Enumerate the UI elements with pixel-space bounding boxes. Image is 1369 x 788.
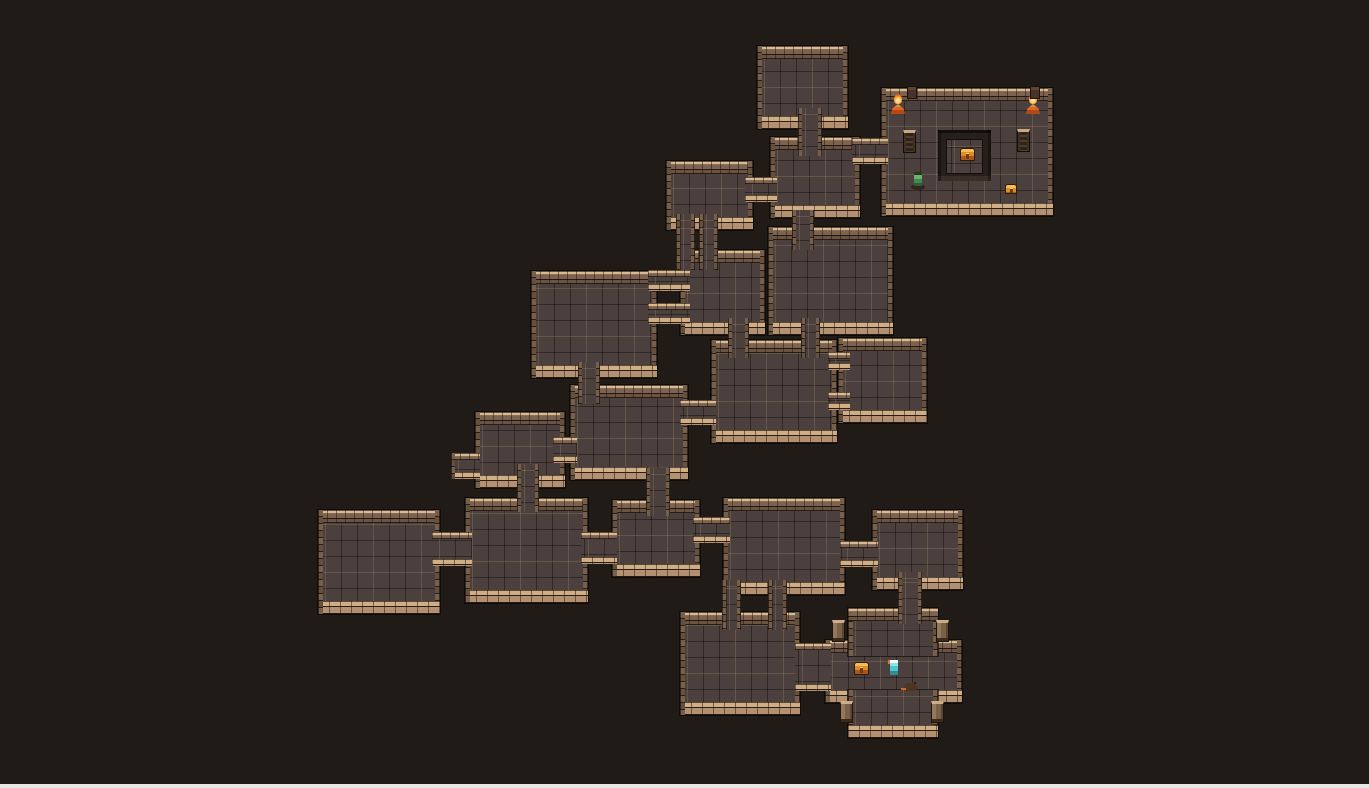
wall-right bbox=[783, 580, 787, 630]
corridor-southd-vault[interactable] bbox=[898, 572, 922, 624]
wall-bottom bbox=[881, 203, 1053, 216]
wall-top bbox=[848, 608, 938, 621]
wall-left bbox=[801, 318, 805, 358]
wall-left bbox=[728, 318, 732, 358]
corridor-top-down[interactable] bbox=[798, 108, 822, 156]
wall-top bbox=[432, 532, 472, 539]
gate-ladder-icon[interactable] bbox=[903, 130, 916, 153]
wall-top bbox=[318, 510, 440, 523]
wall-left bbox=[768, 227, 773, 335]
wall-top bbox=[648, 303, 690, 310]
wall-bottom bbox=[680, 418, 716, 425]
wall-left bbox=[646, 468, 650, 516]
wall-left bbox=[757, 46, 762, 129]
corridor-midb-westa-1[interactable] bbox=[676, 214, 695, 270]
wall-right bbox=[666, 468, 670, 516]
goblin-sprite[interactable] bbox=[911, 172, 925, 190]
wall-bottom bbox=[745, 195, 777, 202]
gate-ladder-icon[interactable] bbox=[1017, 129, 1030, 152]
wall-left bbox=[768, 580, 772, 630]
treasure-chest-sprite[interactable] bbox=[960, 148, 975, 161]
wall-left bbox=[318, 510, 323, 614]
wall-top bbox=[581, 532, 617, 539]
corridor-southc-southe-1[interactable] bbox=[722, 580, 741, 630]
wall-left bbox=[517, 464, 521, 512]
room-central-hall[interactable] bbox=[768, 227, 893, 335]
corridor-hall-centrala[interactable] bbox=[801, 318, 820, 358]
wall-right bbox=[918, 572, 922, 624]
wall-top bbox=[838, 338, 927, 351]
wall-right bbox=[596, 362, 600, 404]
corridor-bigwest-westa-1[interactable] bbox=[648, 270, 690, 291]
wall-top bbox=[475, 412, 565, 425]
wall-bottom bbox=[852, 157, 888, 164]
wall-left bbox=[838, 338, 843, 423]
wall-right bbox=[535, 464, 539, 512]
corridor-southwest-southa[interactable] bbox=[432, 532, 472, 566]
wall-bottom bbox=[432, 559, 472, 566]
wall-left bbox=[578, 362, 582, 404]
wall-top bbox=[828, 352, 850, 359]
wall-top bbox=[745, 177, 777, 184]
wall-top bbox=[680, 400, 716, 407]
wall-bottom bbox=[648, 284, 690, 291]
corridor-southa-southb[interactable] bbox=[581, 532, 617, 564]
corridor-midb-mida[interactable] bbox=[745, 177, 777, 202]
wall-bottom bbox=[553, 456, 577, 463]
corridor-midwest-ab[interactable] bbox=[553, 437, 577, 463]
wall-right bbox=[737, 580, 741, 630]
corridor-bigwest-westa-2[interactable] bbox=[648, 303, 690, 324]
wall-top bbox=[840, 541, 878, 548]
wall-right bbox=[745, 318, 749, 358]
stone-pillar-icon bbox=[931, 701, 944, 723]
wall-top bbox=[757, 46, 848, 59]
hero-sprite[interactable] bbox=[888, 660, 899, 676]
wall-top bbox=[872, 510, 963, 523]
room-south-west[interactable] bbox=[318, 510, 440, 614]
wall-right bbox=[1048, 88, 1053, 216]
wall-bottom bbox=[465, 590, 588, 603]
corridor-centrala-b-2[interactable] bbox=[828, 392, 850, 410]
wall-bottom bbox=[711, 430, 837, 443]
wall-top bbox=[723, 498, 845, 511]
corridor-southc-southd[interactable] bbox=[840, 541, 878, 567]
corridor-centrala-b-1[interactable] bbox=[828, 352, 850, 370]
wall-left bbox=[792, 210, 796, 250]
wall-bottom bbox=[770, 205, 860, 218]
wall-left bbox=[699, 214, 703, 270]
corridor-westa-centrala[interactable] bbox=[728, 318, 749, 358]
corridor-midwestb-centrala[interactable] bbox=[680, 400, 716, 425]
wall-post-icon bbox=[1030, 86, 1040, 99]
corridor-southb-southc[interactable] bbox=[693, 517, 730, 543]
corridor-mida-treasure[interactable] bbox=[852, 138, 888, 164]
wall-top bbox=[648, 270, 690, 277]
wall-top bbox=[666, 161, 753, 174]
wall-left bbox=[676, 214, 680, 270]
wall-bottom bbox=[648, 317, 690, 324]
wall-right bbox=[714, 214, 718, 270]
corridor-midwesta-stub[interactable] bbox=[451, 453, 480, 479]
wall-right bbox=[816, 318, 820, 358]
wall-top bbox=[795, 643, 831, 650]
torch-icon bbox=[891, 94, 905, 114]
corridor-southc-southe-2[interactable] bbox=[768, 580, 787, 630]
wall-bottom bbox=[768, 322, 893, 335]
screen-bottom-edge bbox=[0, 784, 1369, 788]
small-chest-sprite[interactable] bbox=[1005, 184, 1017, 194]
wall-top bbox=[553, 437, 577, 444]
wall-top bbox=[852, 138, 888, 145]
room-vault-bot[interactable] bbox=[848, 690, 938, 738]
wall-top bbox=[451, 453, 480, 460]
corridor-southe-vault[interactable] bbox=[795, 643, 831, 691]
treasure-chest-sprite[interactable] bbox=[854, 662, 869, 675]
wall-right bbox=[691, 214, 695, 270]
corridor-midwesta-down[interactable] bbox=[517, 464, 539, 512]
wall-left bbox=[798, 108, 802, 156]
wall-bottom bbox=[795, 684, 831, 691]
room-central-b[interactable] bbox=[838, 338, 927, 423]
wall-post-icon bbox=[907, 86, 917, 99]
wall-bottom bbox=[693, 536, 730, 543]
wall-left bbox=[680, 612, 685, 715]
wall-bottom bbox=[828, 403, 850, 410]
wall-left bbox=[531, 271, 536, 378]
room-vault-top[interactable] bbox=[848, 608, 938, 656]
wall-bottom bbox=[612, 564, 700, 577]
corridor-midwestb-southb[interactable] bbox=[646, 468, 670, 516]
wall-right bbox=[888, 227, 893, 335]
wall-left bbox=[451, 453, 455, 479]
wall-bottom bbox=[828, 363, 850, 370]
wall-left bbox=[570, 385, 575, 480]
stone-pillar-icon bbox=[936, 620, 949, 642]
wall-top bbox=[828, 392, 850, 399]
wall-bottom bbox=[680, 322, 765, 335]
dungeon-map[interactable] bbox=[0, 0, 1369, 788]
wall-left bbox=[898, 572, 902, 624]
wall-bottom bbox=[848, 725, 938, 738]
corridor-midb-westa-2[interactable] bbox=[699, 214, 718, 270]
wall-left bbox=[666, 161, 671, 230]
wall-bottom bbox=[838, 410, 927, 423]
wall-right bbox=[818, 108, 822, 156]
wall-bottom bbox=[570, 467, 688, 480]
wall-bottom bbox=[581, 557, 617, 564]
stone-pillar-icon bbox=[840, 701, 853, 723]
wall-bottom bbox=[680, 702, 800, 715]
rat-sprite[interactable] bbox=[904, 683, 917, 691]
wall-bottom bbox=[451, 472, 480, 479]
wall-top bbox=[768, 227, 893, 240]
corridor-bigwest-down[interactable] bbox=[578, 362, 600, 404]
room-south-a[interactable] bbox=[465, 498, 588, 603]
wall-bottom bbox=[840, 560, 878, 567]
corridor-mida-hall[interactable] bbox=[792, 210, 814, 250]
wall-top bbox=[693, 517, 730, 524]
wall-top bbox=[531, 271, 657, 284]
wall-left bbox=[711, 340, 716, 443]
wall-bottom bbox=[318, 601, 440, 614]
stone-pillar-icon bbox=[832, 620, 845, 642]
wall-right bbox=[810, 210, 814, 250]
wall-left bbox=[722, 580, 726, 630]
